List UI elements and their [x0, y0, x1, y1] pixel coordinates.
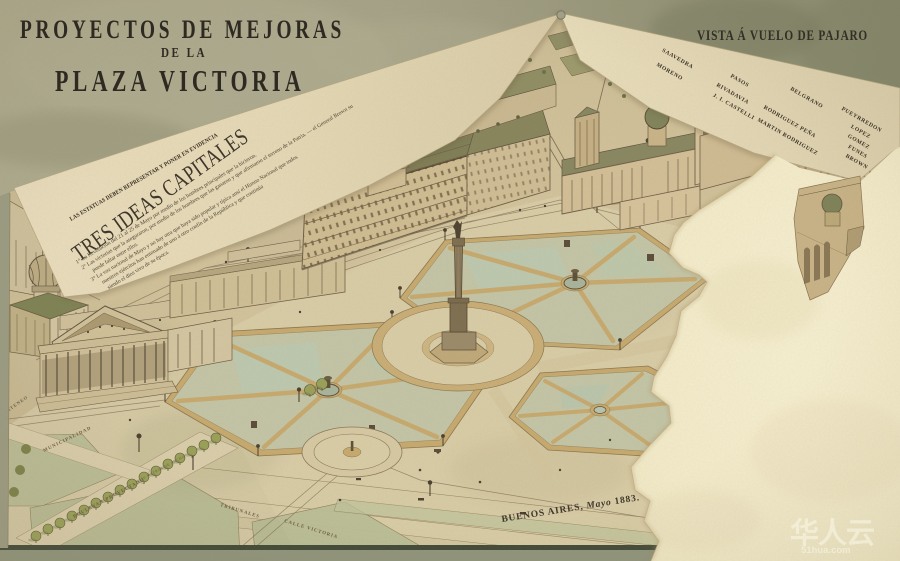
- svg-text:PROYECTOS DE MEJORAS: PROYECTOS DE MEJORAS: [20, 15, 345, 44]
- svg-text:51hua.com: 51hua.com: [801, 545, 851, 556]
- svg-text:DE LA: DE LA: [161, 45, 207, 60]
- svg-text:PLAZA VICTORIA: PLAZA VICTORIA: [55, 63, 305, 98]
- svg-text:VISTA Á VUELO DE PAJARO: VISTA Á VUELO DE PAJARO: [697, 27, 868, 44]
